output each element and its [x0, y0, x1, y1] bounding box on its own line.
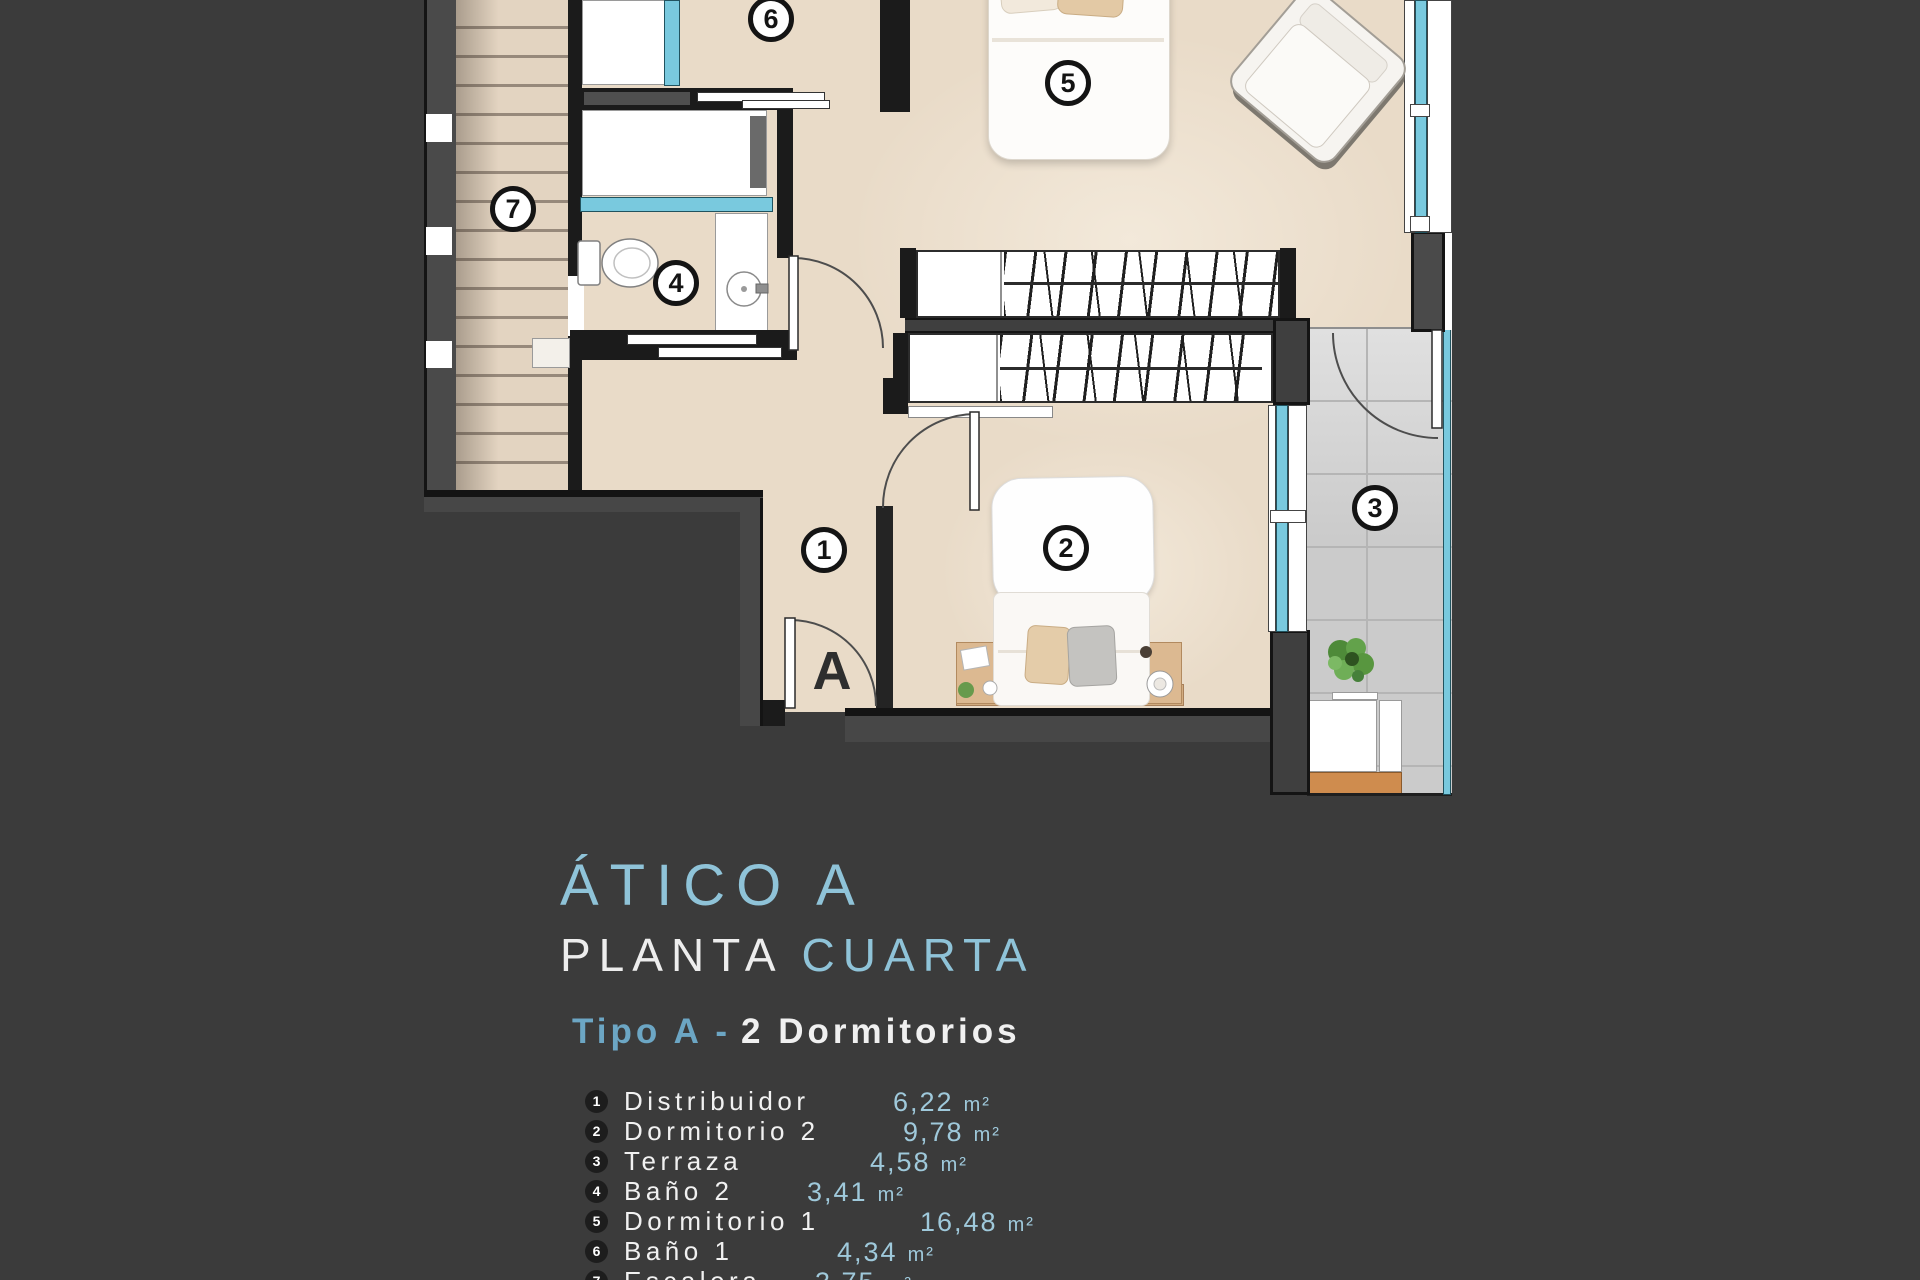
legend-value-group: 4,34m²: [837, 1237, 935, 1268]
type-heading-blue: Tipo A -: [572, 1012, 731, 1051]
door-arc-entry: [790, 620, 876, 706]
legend-value-group: 3,41m²: [807, 1177, 905, 1208]
legend-value: 9,78: [903, 1117, 964, 1147]
sink-icon: [727, 272, 768, 306]
legend-bullet: 1: [585, 1090, 608, 1113]
legend-unit: m²: [878, 1184, 905, 1206]
legend-unit: m²: [1008, 1214, 1035, 1236]
legend-value: 6,22: [893, 1087, 954, 1117]
door-leaf-bedroom2: [970, 412, 979, 510]
door-leaf-terrace: [1432, 330, 1442, 428]
room-circle-2: 2: [1043, 525, 1089, 571]
plan-overlay: [0, 0, 1920, 800]
legend-unit: m²: [964, 1094, 991, 1116]
legend-name: Distribuidor: [624, 1086, 810, 1117]
legend-value: 3,41: [807, 1177, 868, 1207]
room-circle-3-label: 3: [1367, 493, 1382, 524]
legend-value: 4,58: [870, 1147, 931, 1177]
room-circle-7: 7: [490, 186, 536, 232]
subtitle-blue: CUARTA: [802, 929, 1035, 981]
page: 1 2 3 4 5 6 7 A ÁTICO A PLANTACUARTA Tip…: [0, 0, 1920, 1280]
legend-value-group: 4,58m²: [870, 1147, 968, 1178]
page-subtitle: PLANTACUARTA: [560, 928, 1034, 982]
legend-row-escalera: 7 Escalera 3,75m²: [585, 1266, 1345, 1280]
door-leaves: [785, 256, 1442, 708]
door-leaf-entry: [785, 618, 795, 708]
legend-name: Escalera: [624, 1266, 761, 1280]
legend-unit: m²: [941, 1154, 968, 1176]
legend-bullet: 7: [585, 1270, 608, 1280]
door-arc-bedroom2: [883, 414, 975, 508]
legend-bullet: 3: [585, 1150, 608, 1173]
type-heading-white: 2 Dormitorios: [741, 1012, 1021, 1051]
room-circle-4: 4: [653, 260, 699, 306]
floor-plan: 1 2 3 4 5 6 7 A: [0, 0, 1920, 800]
room-circle-3: 3: [1352, 485, 1398, 531]
legend-row-bano-2: 4 Baño 2 3,41m²: [585, 1176, 1345, 1206]
room-circle-2-label: 2: [1058, 533, 1073, 564]
room-circle-5-label: 5: [1060, 68, 1075, 99]
legend-value: 4,34: [837, 1237, 898, 1267]
door-arc-terrace: [1333, 333, 1438, 438]
room-circle-1-label: 1: [816, 535, 831, 566]
legend-value: 3,75: [815, 1267, 876, 1280]
room-legend: 1 Distribuidor 6,22m² 2 Dormitorio 2 9,7…: [585, 1086, 1345, 1280]
legend-bullet: 2: [585, 1120, 608, 1143]
plant-icon: [1328, 638, 1374, 682]
room-circle-1: 1: [801, 527, 847, 573]
legend-row-dormitorio-2: 2 Dormitorio 2 9,78m²: [585, 1116, 1345, 1146]
legend-value-group: 3,75m²: [815, 1267, 913, 1280]
legend-name: Terraza: [624, 1146, 742, 1177]
legend-unit: m²: [974, 1124, 1001, 1146]
door-leaf-bath2: [789, 256, 798, 350]
room-circle-4-label: 4: [668, 268, 683, 299]
legend-name: Baño 2: [624, 1176, 733, 1207]
legend-value-group: 6,22m²: [893, 1087, 991, 1118]
legend-name: Baño 1: [624, 1236, 733, 1267]
legend-bullet: 6: [585, 1240, 608, 1263]
nightstand-items: [958, 646, 1173, 698]
legend-unit: m²: [886, 1274, 913, 1280]
room-circle-5: 5: [1045, 60, 1091, 106]
legend-unit: m²: [908, 1244, 935, 1266]
legend-row-bano-1: 6 Baño 1 4,34m²: [585, 1236, 1345, 1266]
legend-row-dormitorio-1: 5 Dormitorio 1 16,48m²: [585, 1206, 1345, 1236]
subtitle-white: PLANTA: [560, 929, 784, 981]
legend-bullet: 4: [585, 1180, 608, 1203]
room-circle-6-label: 6: [763, 4, 778, 35]
legend-name: Dormitorio 1: [624, 1206, 820, 1237]
legend-value-group: 16,48m²: [920, 1207, 1035, 1238]
page-title: ÁTICO A: [560, 852, 866, 919]
toilet-icon: [578, 239, 658, 287]
door-swing-arcs: [790, 258, 1438, 706]
legend-value: 16,48: [920, 1207, 998, 1237]
legend-row-distribuidor: 1 Distribuidor 6,22m²: [585, 1086, 1345, 1116]
type-heading: Tipo A -2 Dormitorios: [572, 1012, 1021, 1052]
legend-value-group: 9,78m²: [903, 1117, 1001, 1148]
legend-name: Dormitorio 2: [624, 1116, 820, 1147]
legend-bullet: 5: [585, 1210, 608, 1233]
room-circle-7-label: 7: [505, 194, 520, 225]
door-arc-bath2: [793, 258, 883, 348]
legend-row-terraza: 3 Terraza 4,58m²: [585, 1146, 1345, 1176]
